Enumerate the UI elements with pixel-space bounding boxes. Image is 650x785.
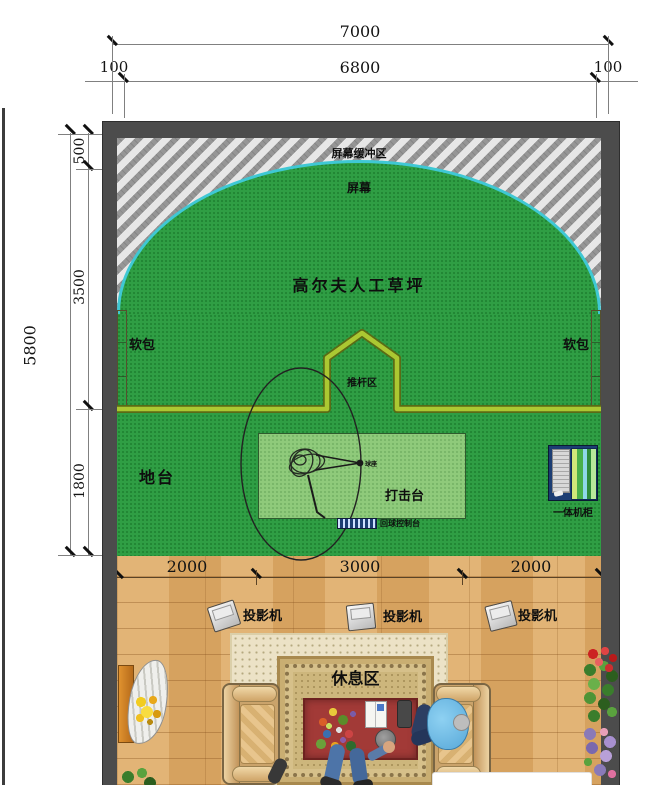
remote-control [397,700,412,728]
floorplan-canvas: 7000 100 6800 100 5800 500 3500 1800 [0,0,650,785]
av-cabinet [548,445,598,501]
dim-bottom-seg-2000-right: 2000 [471,557,591,576]
plant-right-red-flowers [585,646,619,676]
cabinet-handle [554,490,564,497]
soft-pad-right-label: 软包 [563,334,589,353]
dim-line-left-segments [88,133,89,556]
hitting-platform-rect [258,433,466,519]
dim-line-bottom [117,577,601,578]
dim-extension-line [112,36,113,114]
armchair-arm [232,686,277,702]
plant-bottom-left [120,767,164,785]
dim-extension-line [124,74,125,118]
dim-bottom-seg-2000-left: 2000 [127,557,247,576]
dim-extension-line [596,74,597,118]
dim-line-left-total [70,133,71,556]
projector-lens [212,604,234,621]
book-on-table [365,701,387,728]
person-standing-hand [383,741,395,753]
projector-3-label: 投影机 [518,605,557,624]
dim-top-total: 7000 [95,22,625,41]
soft-pad-left-label: 软包 [129,334,155,353]
projector-lens [350,607,371,620]
ball-return-console-label: 回球控制台 [380,518,420,529]
av-cabinet-label: 一体机柜 [532,504,601,519]
dim-left-seg-3500: 3500 [72,247,88,327]
putter-zone-label: 推杆区 [320,374,404,389]
dim-extension-line [256,570,257,585]
turf-label: 高尔夫人工草坪 [117,272,601,296]
cropped-label-box [432,772,592,785]
screen-buffer-label: 屏幕缓冲区 [117,145,601,161]
platform-label: 地台 [139,464,175,488]
cabinet-rack-panel [552,449,570,493]
adjacent-drawing-edge-line [2,108,5,785]
dim-line-top-inner [85,81,638,82]
soft-pad-left-strip [117,310,127,412]
tee-label: 球座 [365,459,377,468]
projector-2 [346,603,377,632]
person-sitting-head [453,714,470,731]
dim-line-top-total [112,44,609,45]
book-blue-mark [377,704,384,711]
projector-1-label: 投影机 [243,605,282,624]
dim-extension-line [608,36,609,114]
dim-top-inner: 6800 [95,58,625,77]
projector-lens [489,605,511,621]
dim-extension-line [462,570,463,585]
armchair-seat [240,704,275,764]
dim-left-seg-1800: 1800 [72,441,88,521]
book-fold-line [375,702,376,727]
soft-pad-right-strip [591,310,601,412]
cabinet-screen [571,448,597,500]
projector-2-label: 投影机 [383,606,422,625]
dim-bottom-seg-3000: 3000 [300,557,420,576]
dim-left-total: 5800 [21,302,40,390]
rest-area-label: 休息区 [277,665,434,689]
yellow-flowers [133,694,163,728]
room-interior: 回球控制台 一体机柜 2000 3000 2000 投影机 投影机 投影机 休 [117,138,601,785]
screen-label: 屏幕 [117,179,601,196]
dim-left-seg-500: 500 [72,111,88,191]
ball-return-console [337,518,377,529]
hitting-platform-label: 打击台 [385,485,424,504]
